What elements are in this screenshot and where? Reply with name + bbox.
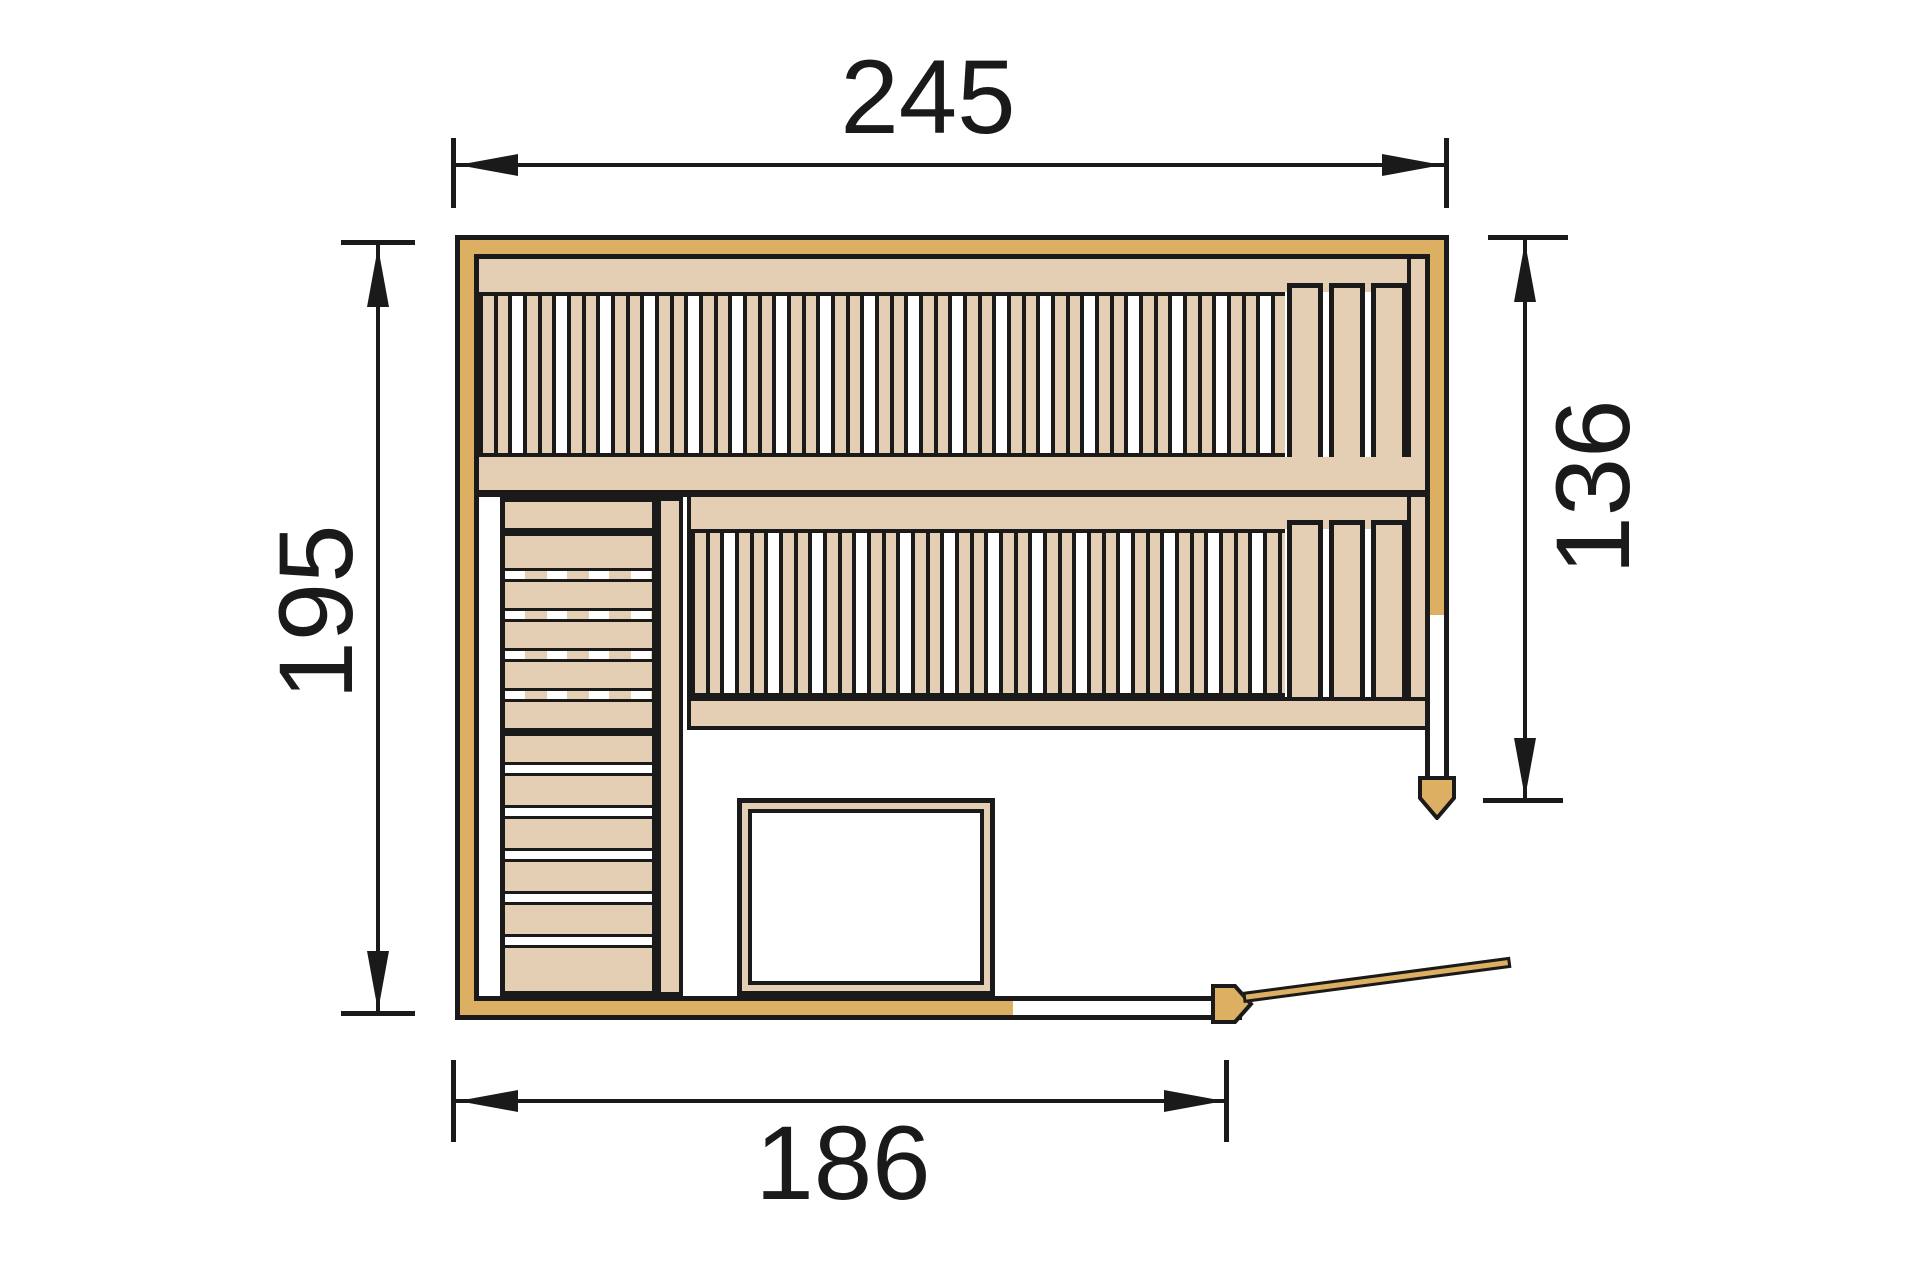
arrowhead-down-icon bbox=[367, 951, 389, 1011]
dim-side-line bbox=[1523, 240, 1527, 798]
dim-side-tick-top bbox=[1488, 235, 1568, 240]
door-frame-post bbox=[1418, 776, 1456, 820]
arrowhead-left-icon bbox=[458, 1090, 518, 1112]
lower-bench-front-rail bbox=[687, 697, 1425, 730]
wall-right-core bbox=[1430, 240, 1444, 615]
dim-depth-line bbox=[376, 245, 380, 1011]
slat-gap-row bbox=[505, 568, 652, 582]
slat-gap-row bbox=[505, 891, 652, 905]
dim-front-label: 186 bbox=[743, 1114, 943, 1214]
wall-left-core bbox=[460, 240, 474, 1015]
dim-width-tick-right bbox=[1444, 138, 1449, 208]
backrest-panel bbox=[500, 497, 657, 996]
headrest-board bbox=[1329, 520, 1365, 707]
bench-divider-line bbox=[479, 490, 1425, 497]
dim-front-line bbox=[456, 1099, 1226, 1103]
wall-bottom-core bbox=[460, 1001, 1013, 1015]
slat-gap-row bbox=[505, 648, 652, 662]
lower-bench-end-rail bbox=[1407, 497, 1425, 730]
glass-panel-right bbox=[1430, 615, 1444, 790]
arrowhead-right-icon bbox=[1164, 1090, 1224, 1112]
arrowhead-up-icon bbox=[367, 247, 389, 307]
wall-bottom-outer-line bbox=[455, 1015, 1242, 1020]
dim-depth-label: 195 bbox=[267, 512, 367, 712]
wall-top-core bbox=[460, 240, 1444, 254]
door-leaf bbox=[1242, 957, 1511, 1003]
sauna-floor-plan: 245 195 136 186 bbox=[0, 0, 1920, 1281]
headrest-board bbox=[1287, 283, 1323, 466]
wall-right-outer-line bbox=[1444, 235, 1449, 790]
slat-gap-row bbox=[505, 762, 652, 776]
slat-gap-row bbox=[505, 688, 652, 702]
upper-bench-front-rail bbox=[479, 457, 1425, 490]
dim-side-label: 136 bbox=[1544, 387, 1644, 587]
wall-bottom-inner-line bbox=[474, 996, 1222, 1001]
dim-width-label: 245 bbox=[828, 48, 1028, 148]
lower-bench-slats bbox=[687, 529, 1285, 697]
slat-gap-row bbox=[505, 934, 652, 948]
heater-interior bbox=[748, 809, 984, 985]
headrest-board bbox=[1371, 520, 1407, 707]
headrest-board bbox=[1329, 283, 1365, 466]
heater-enclosure bbox=[737, 798, 995, 996]
arrowhead-right-icon bbox=[1382, 154, 1442, 176]
dim-side-tick-bottom bbox=[1483, 798, 1563, 803]
dim-width-tick-left bbox=[451, 138, 456, 208]
wall-right-inner-line bbox=[1425, 254, 1430, 790]
arrowhead-up-icon bbox=[1514, 242, 1536, 302]
upper-bench-slats bbox=[479, 292, 1285, 457]
door-hinge-post bbox=[1211, 984, 1255, 1024]
backrest-panel-top-line bbox=[505, 528, 652, 536]
arrowhead-left-icon bbox=[458, 154, 518, 176]
bench-support-post bbox=[657, 497, 683, 996]
upper-bench-back-rail bbox=[479, 259, 1425, 292]
slat-gap-row bbox=[505, 805, 652, 819]
headrest-board bbox=[1287, 520, 1323, 707]
arrowhead-down-icon bbox=[1514, 738, 1536, 798]
dim-depth-tick-bottom bbox=[341, 1011, 415, 1016]
headrest-board bbox=[1371, 283, 1407, 466]
glass-panel-front bbox=[1013, 1001, 1217, 1015]
dim-width-line bbox=[456, 163, 1444, 167]
slat-gap-row bbox=[505, 608, 652, 622]
backrest-panel-mid-line bbox=[505, 728, 652, 736]
slat-gap-row bbox=[505, 848, 652, 862]
